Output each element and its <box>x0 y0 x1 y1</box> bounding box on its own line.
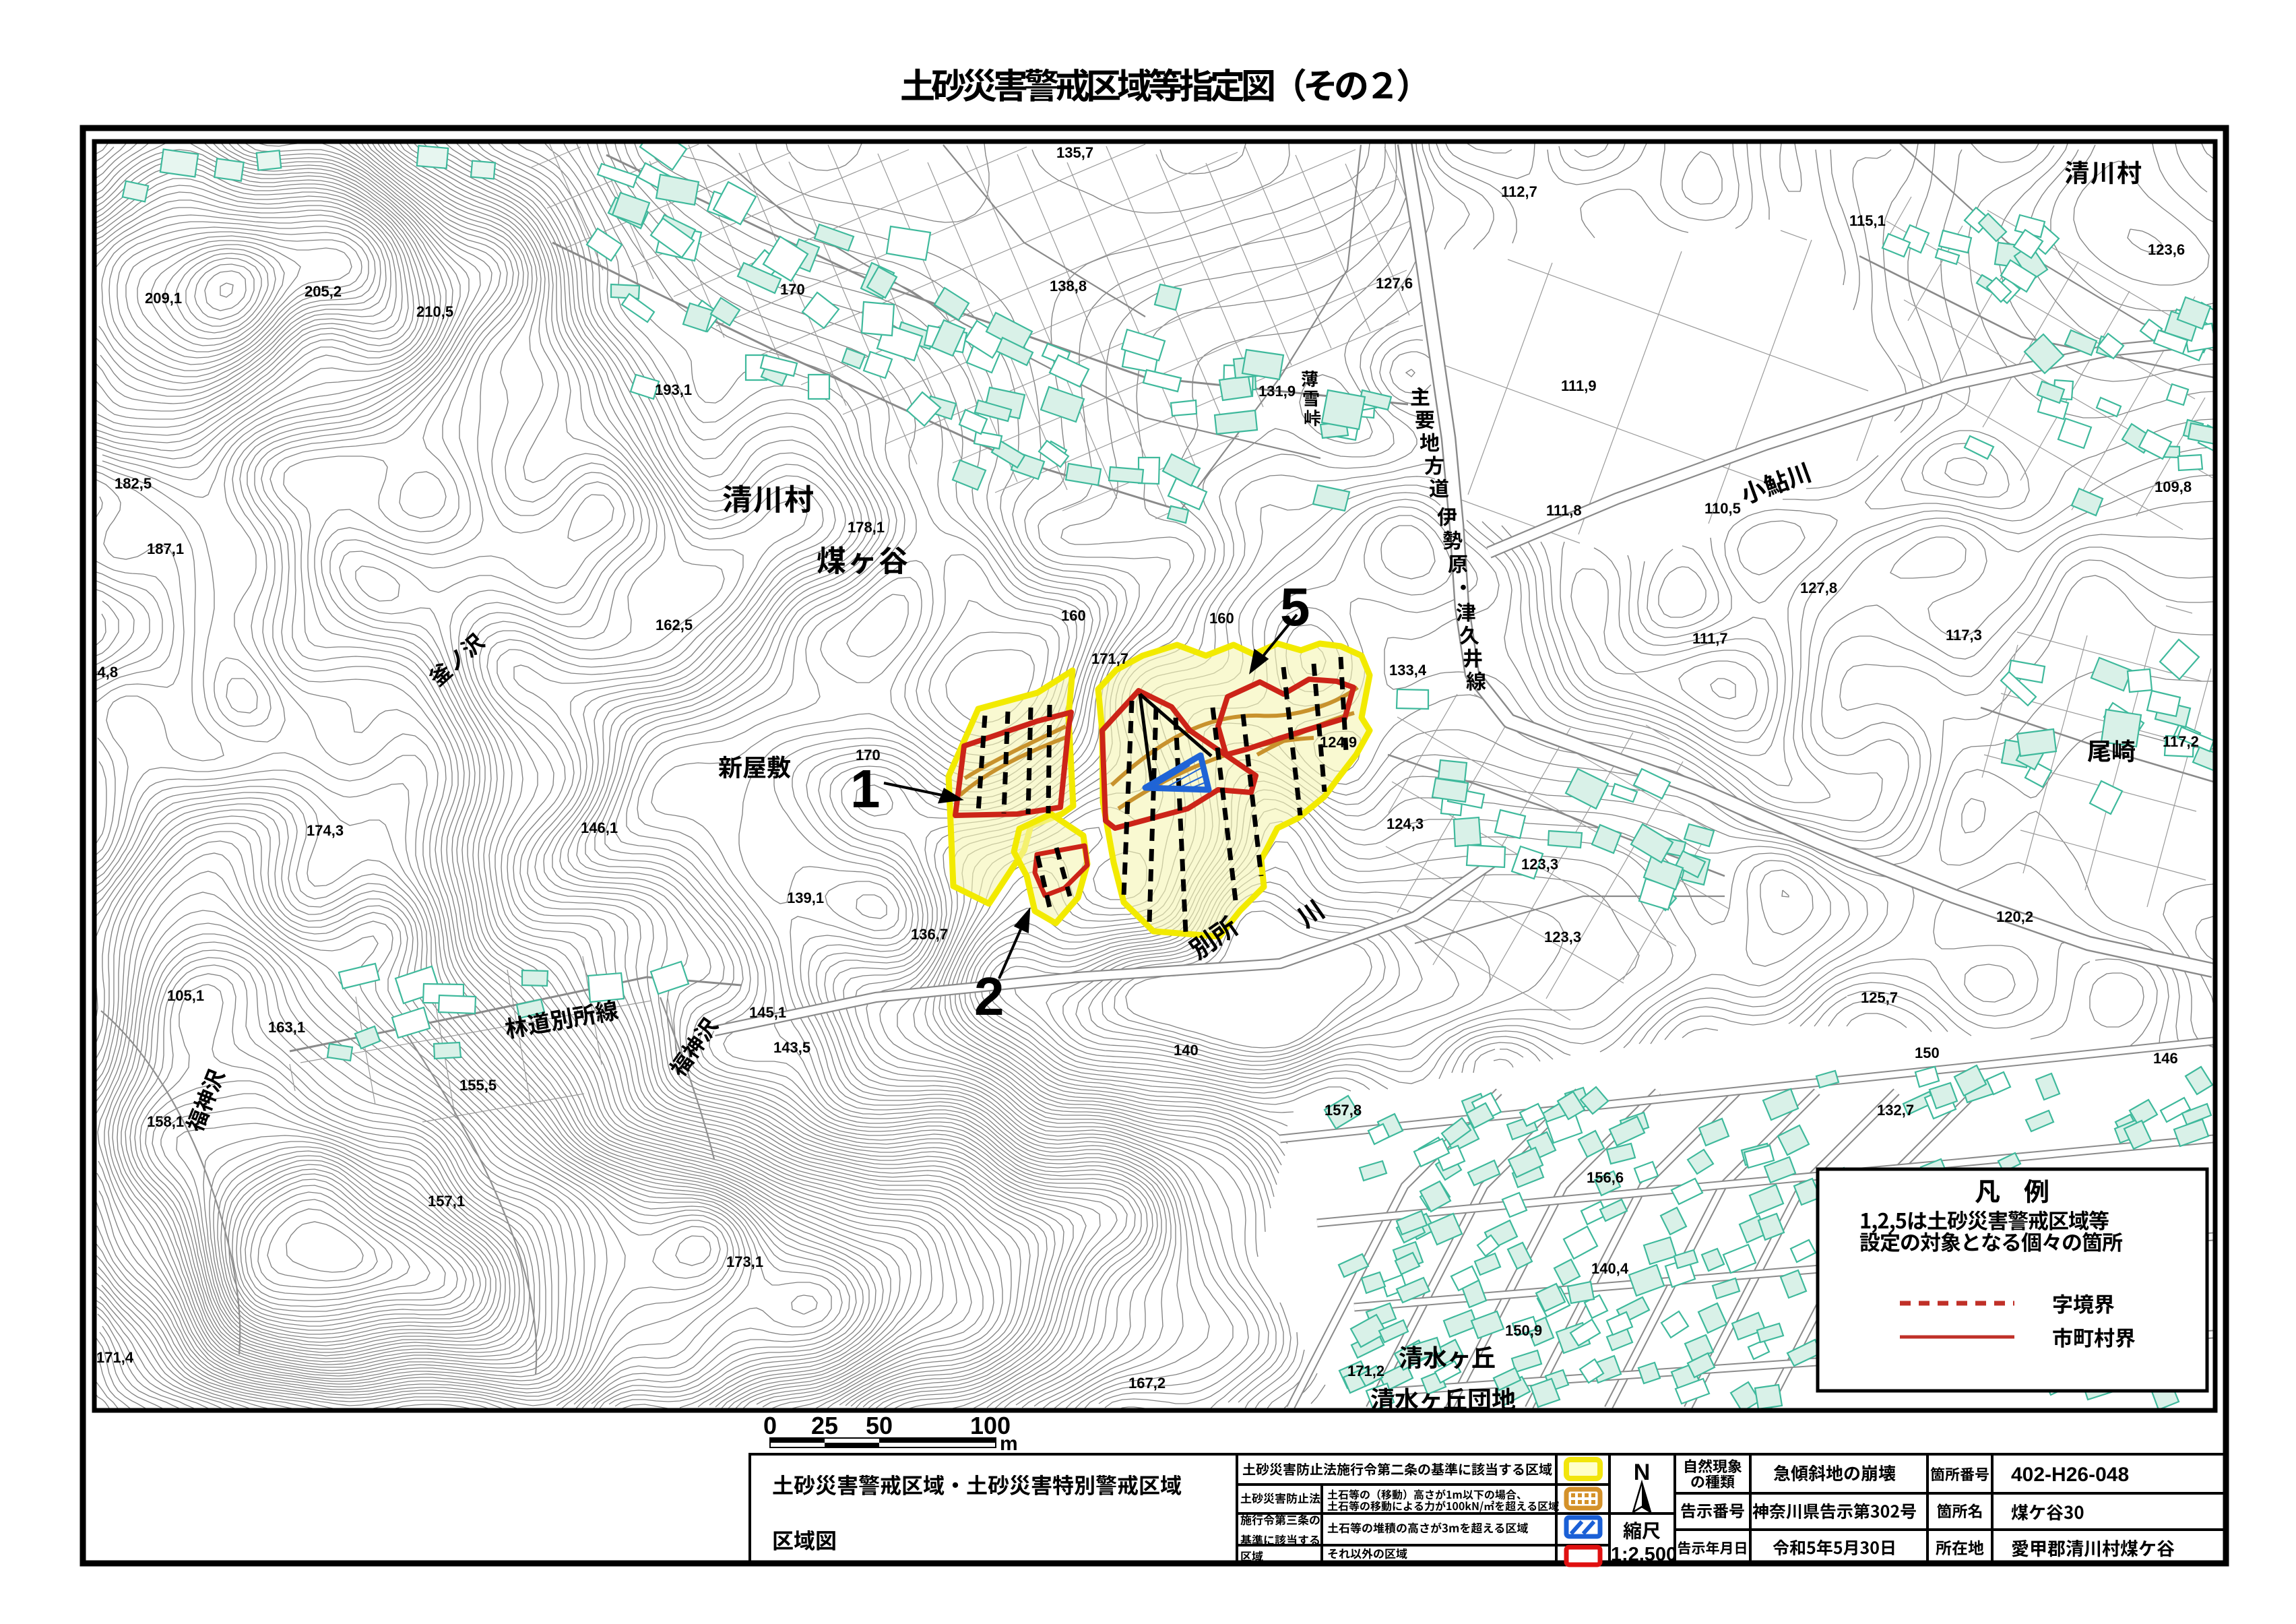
svg-text:112,7: 112,7 <box>1501 183 1537 200</box>
svg-text:111,9: 111,9 <box>1561 377 1597 394</box>
svg-text:143,5: 143,5 <box>773 1039 810 1056</box>
svg-text:140,4: 140,4 <box>1591 1260 1629 1277</box>
svg-text:m: m <box>1000 1433 1018 1455</box>
svg-text:157,1: 157,1 <box>428 1193 465 1210</box>
svg-text:127,8: 127,8 <box>1800 580 1837 596</box>
svg-text:209,1: 209,1 <box>145 290 182 307</box>
svg-text:173,1: 173,1 <box>726 1253 763 1270</box>
svg-text:0: 0 <box>763 1412 777 1439</box>
svg-text:171,7: 171,7 <box>1091 650 1128 667</box>
svg-text:402-H26-048: 402-H26-048 <box>2011 1464 2129 1486</box>
svg-text:111,7: 111,7 <box>1692 630 1728 647</box>
svg-text:105,1: 105,1 <box>167 987 204 1004</box>
svg-text:146,1: 146,1 <box>581 819 618 836</box>
svg-text:140: 140 <box>1174 1042 1199 1059</box>
svg-text:210,5: 210,5 <box>416 303 453 320</box>
svg-text:160: 160 <box>1061 607 1086 624</box>
svg-text:131,9: 131,9 <box>1258 383 1296 400</box>
svg-text:123,3: 123,3 <box>1521 856 1558 873</box>
svg-text:155,5: 155,5 <box>459 1077 497 1094</box>
svg-text:144,8: 144,8 <box>81 664 118 681</box>
svg-text:138,8: 138,8 <box>1050 278 1087 294</box>
svg-text:132,7: 132,7 <box>1877 1102 1914 1119</box>
svg-text:171,4: 171,4 <box>96 1349 134 1366</box>
svg-text:115,1: 115,1 <box>1849 212 1886 229</box>
svg-text:156,6: 156,6 <box>1587 1169 1624 1186</box>
svg-text:1: 1 <box>850 759 881 819</box>
svg-text:157,8: 157,8 <box>1325 1102 1362 1119</box>
svg-text:123,3: 123,3 <box>1544 929 1581 945</box>
svg-text:109,8: 109,8 <box>2155 478 2192 495</box>
svg-text:167,2: 167,2 <box>1128 1375 1166 1392</box>
svg-text:1:2,500: 1:2,500 <box>1611 1544 1677 1565</box>
svg-text:125,7: 125,7 <box>1861 989 1898 1006</box>
svg-text:50: 50 <box>866 1412 893 1439</box>
svg-text:150,9: 150,9 <box>1505 1322 1542 1339</box>
svg-text:135,7: 135,7 <box>1056 144 1093 161</box>
svg-text:111,8: 111,8 <box>1546 502 1582 519</box>
svg-text:182,5: 182,5 <box>115 475 152 492</box>
svg-text:136,7: 136,7 <box>911 926 948 943</box>
svg-text:205,2: 205,2 <box>305 283 342 300</box>
svg-text:123,6: 123,6 <box>2148 241 2185 258</box>
svg-text:158,1: 158,1 <box>147 1113 184 1130</box>
svg-text:150: 150 <box>1915 1044 1940 1061</box>
svg-text:160: 160 <box>1209 610 1234 627</box>
svg-text:127,6: 127,6 <box>1376 275 1413 292</box>
svg-text:124,9: 124,9 <box>1320 734 1357 751</box>
svg-text:178,1: 178,1 <box>848 519 885 536</box>
svg-text:174,3: 174,3 <box>307 822 344 839</box>
svg-text:110,5: 110,5 <box>1704 500 1741 517</box>
svg-text:187,1: 187,1 <box>147 540 184 557</box>
svg-text:162,5: 162,5 <box>656 617 693 633</box>
svg-text:171,2: 171,2 <box>1347 1363 1384 1379</box>
svg-text:170: 170 <box>780 281 805 298</box>
svg-text:145,1: 145,1 <box>749 1004 786 1021</box>
svg-text:117,3: 117,3 <box>1946 627 1982 644</box>
svg-text:124,3: 124,3 <box>1386 815 1424 832</box>
svg-text:139,1: 139,1 <box>787 889 824 906</box>
svg-text:146: 146 <box>2153 1050 2178 1067</box>
svg-text:117,2: 117,2 <box>2163 733 2199 750</box>
svg-text:25: 25 <box>811 1412 838 1439</box>
svg-text:120,2: 120,2 <box>1996 908 2033 925</box>
svg-text:133,4: 133,4 <box>1389 662 1427 679</box>
svg-text:163,1: 163,1 <box>268 1019 305 1036</box>
svg-text:193,1: 193,1 <box>655 381 692 398</box>
